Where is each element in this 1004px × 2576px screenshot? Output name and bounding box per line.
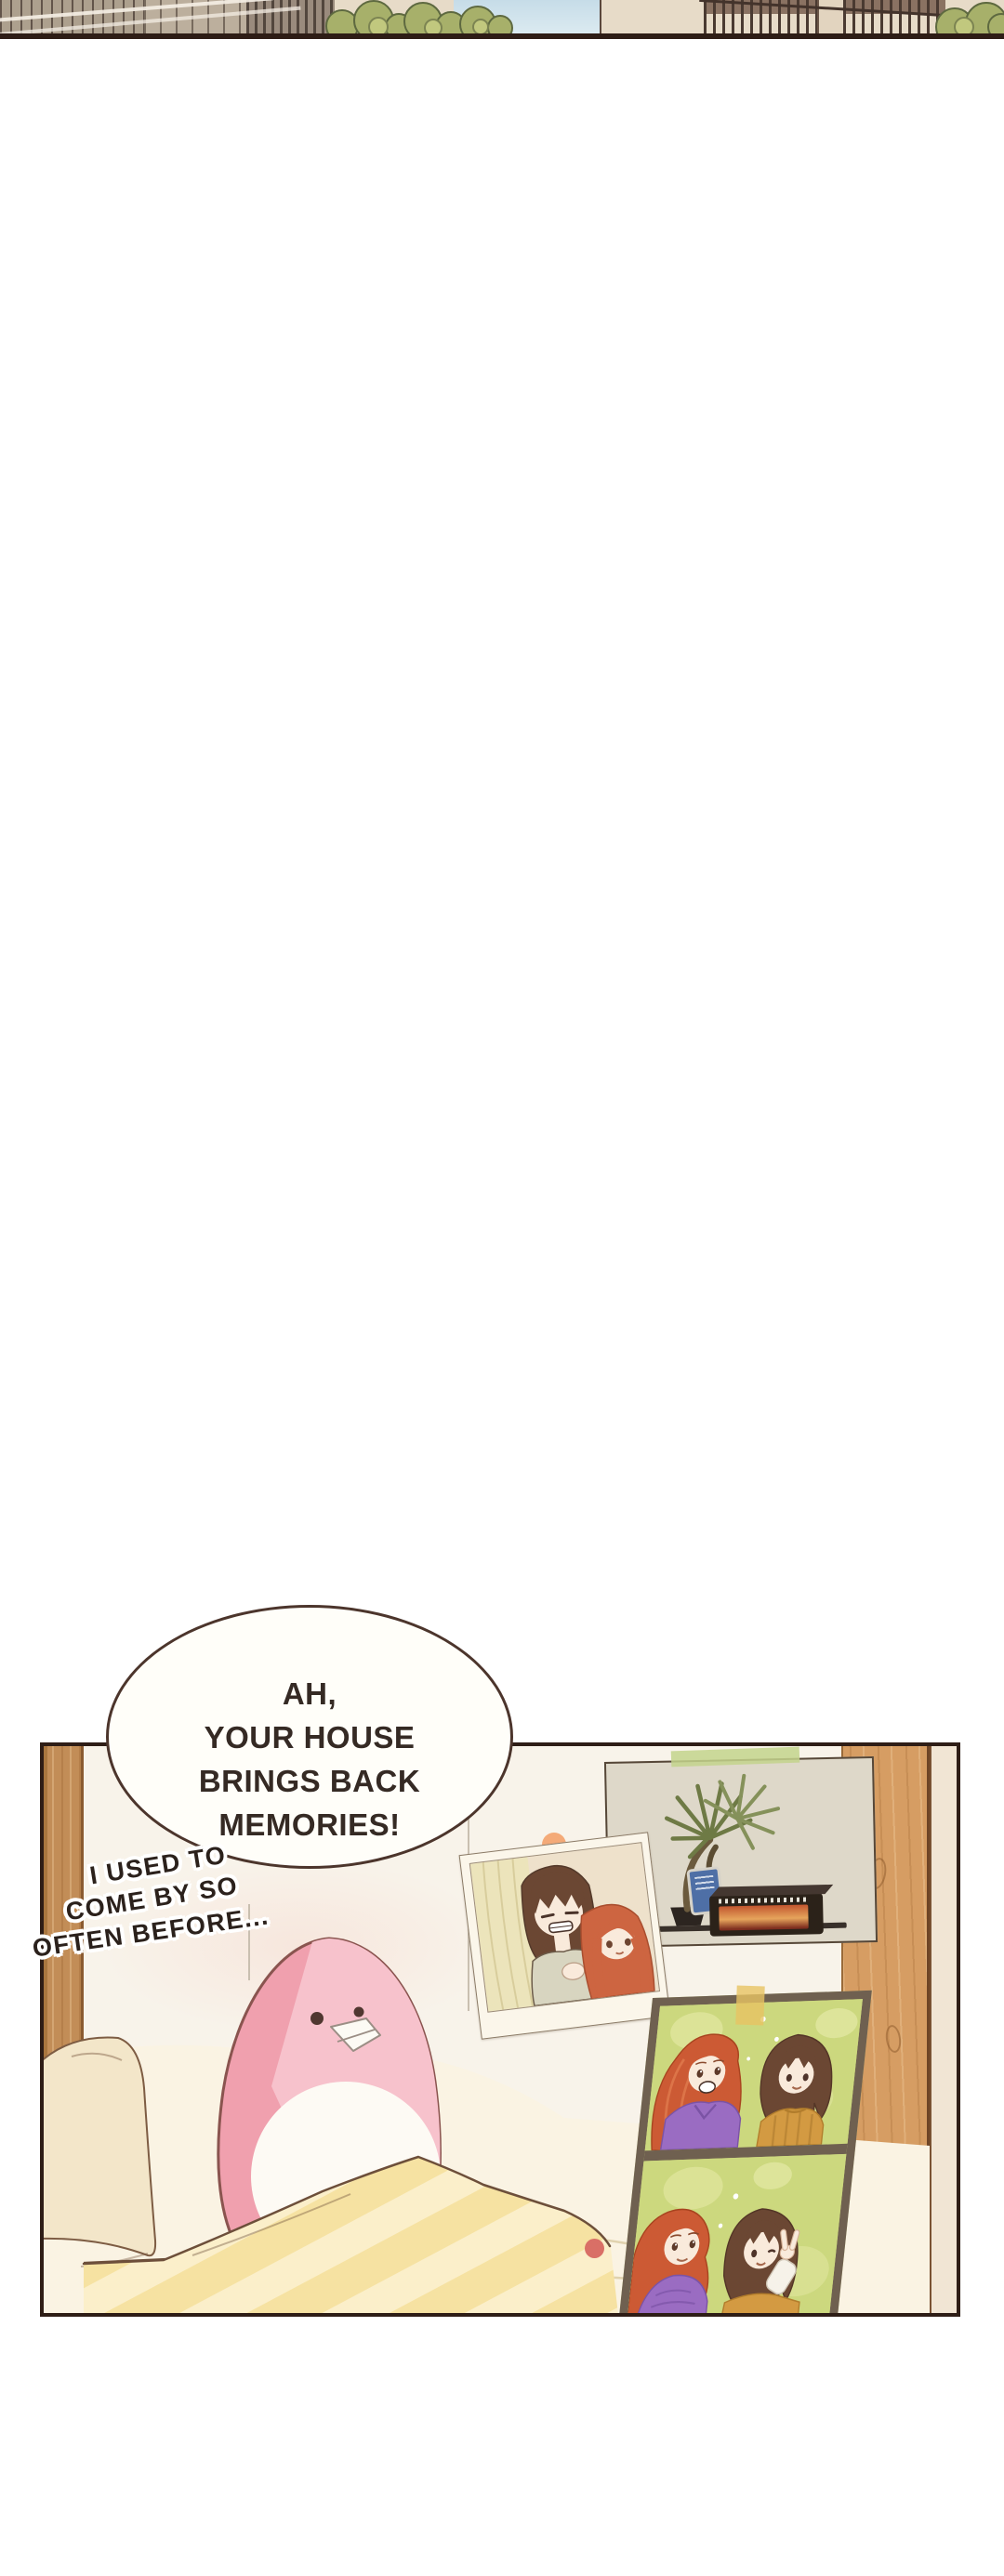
- bubble-line: MEMORIES!: [199, 1803, 420, 1847]
- photo-strip: [617, 1991, 871, 2317]
- speech-bubble-text: AH, YOUR HOUSE BRINGS BACK MEMORIES!: [199, 1672, 420, 1847]
- polaroid-photo: [459, 1832, 671, 2039]
- previous-panel-sliver: [0, 0, 1004, 39]
- panel-border: [0, 33, 1004, 39]
- yellow-washi-tape: [735, 1985, 764, 2025]
- wall-edge-strip: [930, 1746, 958, 2313]
- bubble-line: YOUR HOUSE: [199, 1715, 420, 1759]
- building-facade: [246, 0, 335, 34]
- railing: [843, 0, 945, 34]
- bubble-line: BRINGS BACK: [199, 1759, 420, 1803]
- radio-vents: [719, 1898, 808, 1904]
- pink-sticker: [585, 2239, 604, 2258]
- photo-two-girls: [470, 1843, 659, 2011]
- speech-bubble: AH, YOUR HOUSE BRINGS BACK MEMORIES!: [106, 1605, 513, 1869]
- radio-screen: [719, 1905, 809, 1931]
- bubble-line: AH,: [199, 1672, 420, 1715]
- radio: [709, 1893, 824, 1937]
- comic-page: AH, YOUR HOUSE BRINGS BACK MEMORIES! I U…: [0, 0, 1004, 2576]
- photo-strip-frame-2: [627, 2154, 846, 2317]
